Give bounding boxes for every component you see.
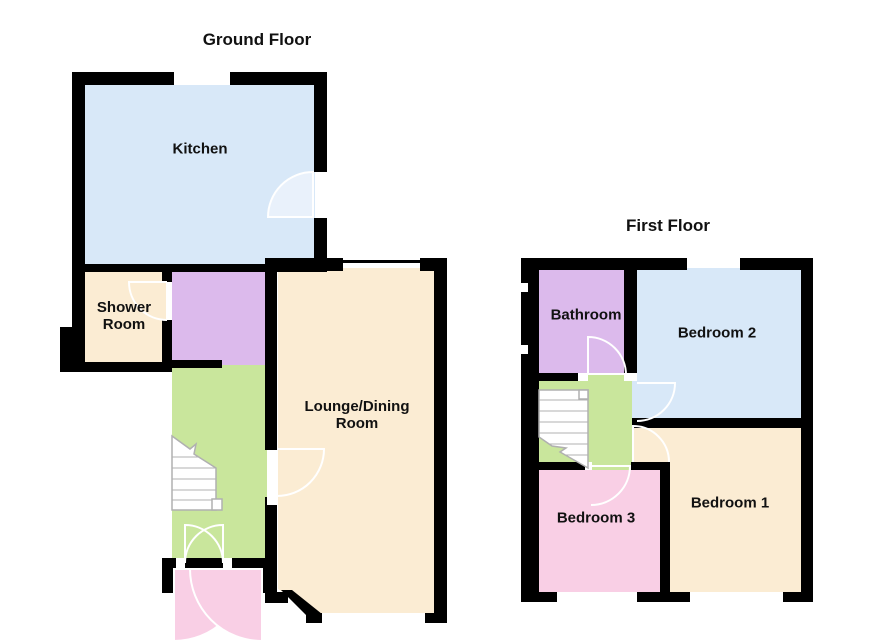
lounge-dining-label: Lounge/Dining Room [293,398,421,433]
bedroom-3-label: Bedroom 3 [557,509,635,526]
kitchen-room-area [85,85,315,264]
bedroom-3-area [538,470,660,592]
shower-room-label: Shower Room [82,299,166,334]
bedroom-2-label: Bedroom 2 [678,324,756,341]
floor-plan: Ground Floor Kitchen Shower Room Lounge/… [0,0,886,644]
porch-double-doors [174,569,262,641]
bathroom-label: Bathroom [551,306,622,323]
ground-floor-plan [60,72,447,641]
ground-floor-title: Ground Floor [203,30,312,50]
bedroom-2-area [632,268,802,418]
bedroom-1-label: Bedroom 1 [691,494,769,511]
lounge-dining-area [278,268,435,613]
first-floor-title: First Floor [626,216,710,236]
kitchen-label: Kitchen [172,140,227,157]
hallway-area [172,272,270,365]
